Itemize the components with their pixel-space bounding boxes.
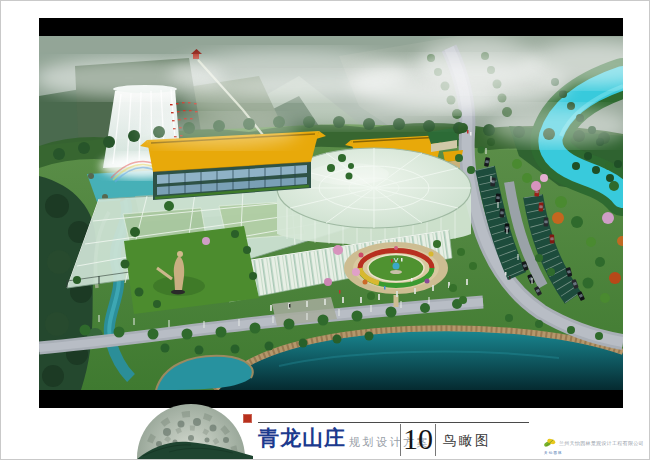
- company-caption: 天怡园林: [544, 451, 563, 455]
- ink-moon-logo: [129, 400, 253, 460]
- sheet-title: 鸟瞰图: [443, 432, 491, 450]
- letterbox-bottom: [39, 390, 623, 408]
- company-block: 兰州天怡园林景观设计工程有限公司: [543, 436, 644, 449]
- company-name: 兰州天怡园林景观设计工程有限公司: [559, 440, 644, 446]
- letterbox-top: [39, 18, 623, 36]
- title-rule: [258, 422, 529, 423]
- red-seal-stamp: [243, 414, 252, 423]
- sheet-number: 10: [401, 422, 435, 456]
- project-title: 青龙山庄: [258, 427, 346, 450]
- divider-right: [435, 424, 436, 456]
- hill-pavilion: [193, 54, 199, 59]
- presentation-board: 青龙山庄 规划设计方案 10 鸟瞰图 兰州天怡园林景观设计工程有限公司 天怡园林: [0, 0, 650, 460]
- company-leaf-logo: [543, 436, 556, 449]
- aerial-rendering: [39, 36, 623, 390]
- rendering-frame: [39, 18, 623, 408]
- fountain: [393, 263, 400, 270]
